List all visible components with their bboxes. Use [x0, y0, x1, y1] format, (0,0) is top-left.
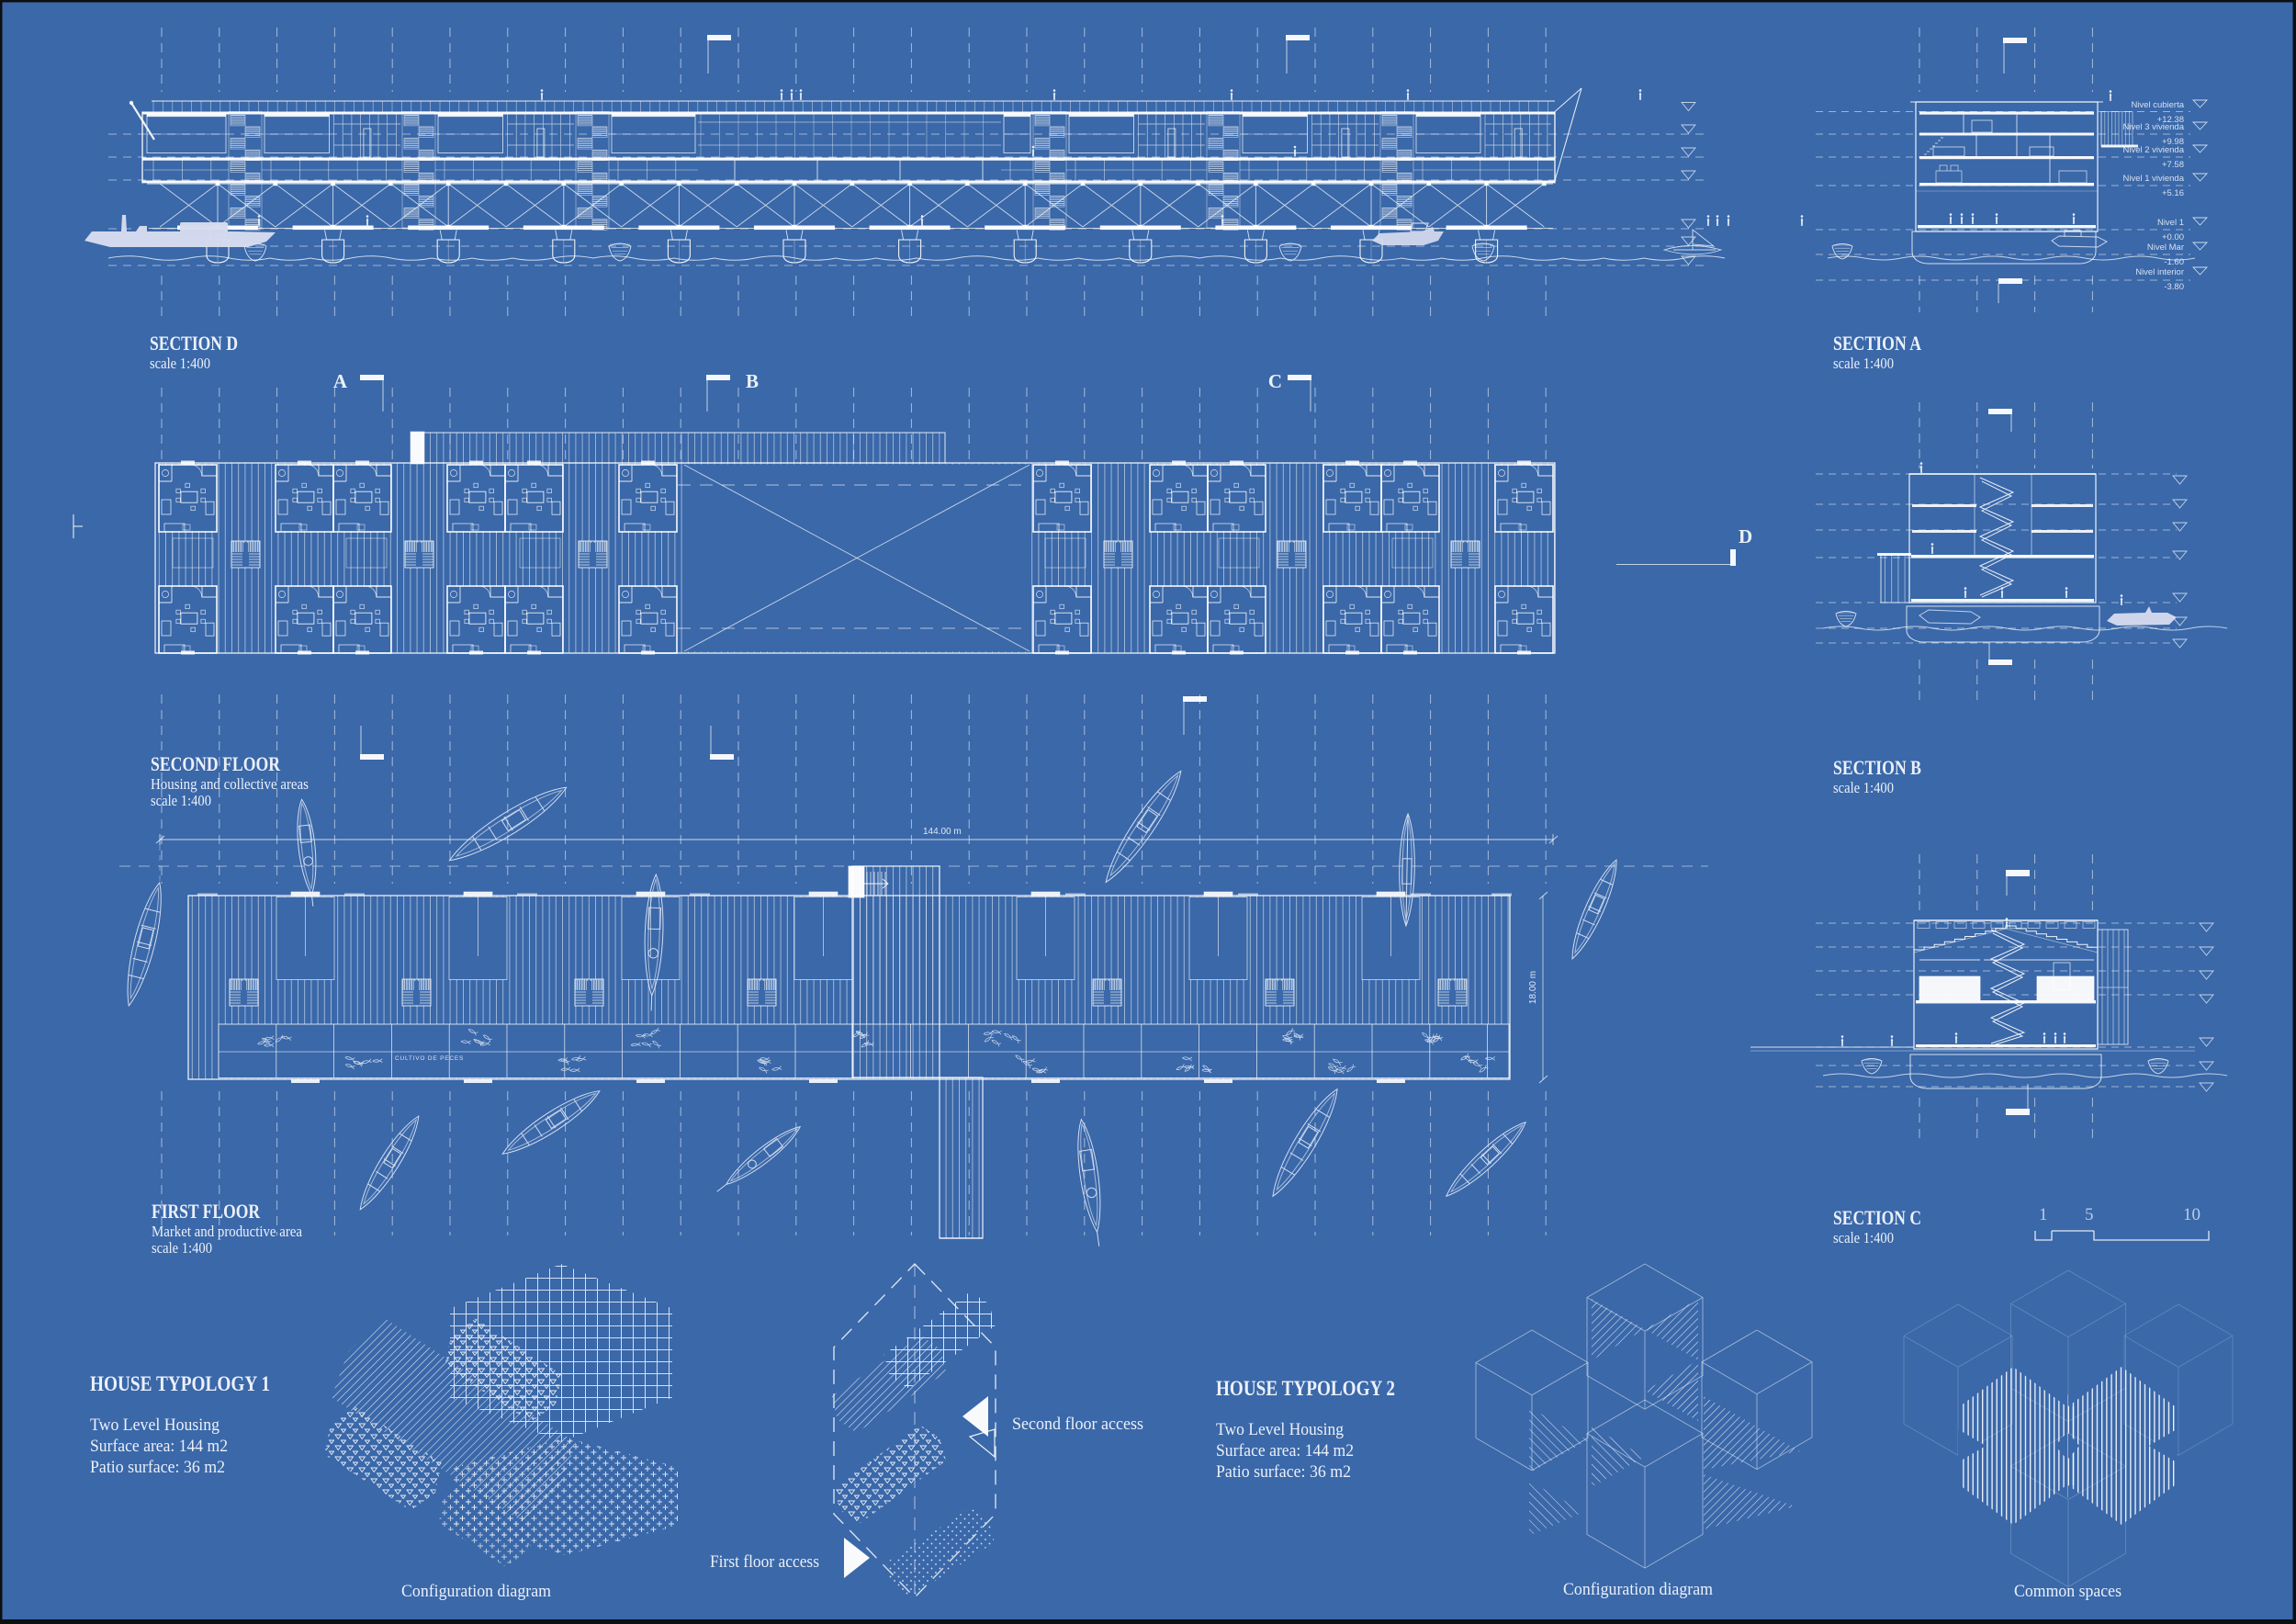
svg-text:Patio surface: 36 m2: Patio surface: 36 m2 [90, 1458, 225, 1477]
svg-text:5: 5 [2085, 1205, 2094, 1224]
svg-text:+5.16: +5.16 [2162, 188, 2184, 198]
svg-text:scale 1:400: scale 1:400 [152, 1239, 212, 1257]
svg-text:scale 1:400: scale 1:400 [1833, 779, 1894, 796]
svg-text:SECOND FLOOR: SECOND FLOOR [151, 752, 281, 775]
svg-text:Common spaces: Common spaces [2014, 1582, 2122, 1601]
svg-text:FIRST FLOOR: FIRST FLOOR [152, 1200, 261, 1223]
svg-text:Nivel cubierta: Nivel cubierta [2131, 100, 2184, 110]
svg-text:Market and productive area: Market and productive area [152, 1223, 302, 1240]
svg-text:Second floor access: Second floor access [1012, 1415, 1143, 1434]
svg-text:Nivel 1 vivienda: Nivel 1 vivienda [2122, 174, 2184, 184]
svg-text:Nivel 3 vivienda: Nivel 3 vivienda [2122, 122, 2184, 132]
svg-text:+0.00: +0.00 [2162, 232, 2184, 242]
svg-text:CULTIVO DE PECES: CULTIVO DE PECES [395, 1055, 464, 1062]
svg-text:Housing and collective areas: Housing and collective areas [151, 775, 309, 793]
svg-text:HOUSE TYPOLOGY 1: HOUSE TYPOLOGY 1 [90, 1372, 270, 1395]
svg-text:10: 10 [2183, 1205, 2200, 1224]
svg-text:scale 1:400: scale 1:400 [1833, 355, 1894, 372]
svg-text:Two Level Housing: Two Level Housing [1216, 1420, 1344, 1439]
svg-text:-3.80: -3.80 [2164, 282, 2184, 292]
svg-text:Patio surface: 36 m2: Patio surface: 36 m2 [1216, 1462, 1351, 1482]
svg-text:SECTION A: SECTION A [1833, 332, 1921, 355]
svg-text:scale 1:400: scale 1:400 [150, 355, 210, 372]
svg-text:Surface area: 144 m2: Surface area: 144 m2 [1216, 1441, 1354, 1460]
svg-text:Configuration diagram: Configuration diagram [1563, 1580, 1713, 1599]
svg-text:1: 1 [2039, 1205, 2048, 1224]
svg-text:A: A [333, 370, 348, 392]
svg-text:scale 1:400: scale 1:400 [151, 792, 211, 809]
svg-text:scale 1:400: scale 1:400 [1833, 1229, 1894, 1246]
svg-text:Nivel Mar: Nivel Mar [2147, 242, 2184, 253]
svg-text:D: D [1739, 525, 1752, 547]
svg-text:18.00 m: 18.00 m [1528, 971, 1538, 1004]
svg-text:Nivel interior: Nivel interior [2135, 267, 2184, 277]
svg-text:HOUSE TYPOLOGY 2: HOUSE TYPOLOGY 2 [1216, 1377, 1395, 1400]
svg-text:C: C [1268, 370, 1282, 392]
svg-text:First floor access: First floor access [710, 1552, 819, 1572]
svg-text:144.00 m: 144.00 m [923, 827, 962, 837]
svg-text:Surface area: 144 m2: Surface area: 144 m2 [90, 1437, 228, 1456]
svg-text:SECTION C: SECTION C [1833, 1206, 1921, 1229]
svg-text:Configuration diagram: Configuration diagram [401, 1582, 551, 1601]
svg-text:SECTION B: SECTION B [1833, 756, 1921, 779]
svg-text:SECTION D: SECTION D [150, 332, 238, 355]
svg-text:Nivel 1: Nivel 1 [2157, 218, 2184, 228]
svg-text:Two Level Housing: Two Level Housing [90, 1415, 219, 1435]
svg-text:-1.60: -1.60 [2164, 257, 2184, 267]
svg-text:B: B [746, 370, 759, 392]
svg-text:+7.58: +7.58 [2162, 160, 2184, 170]
